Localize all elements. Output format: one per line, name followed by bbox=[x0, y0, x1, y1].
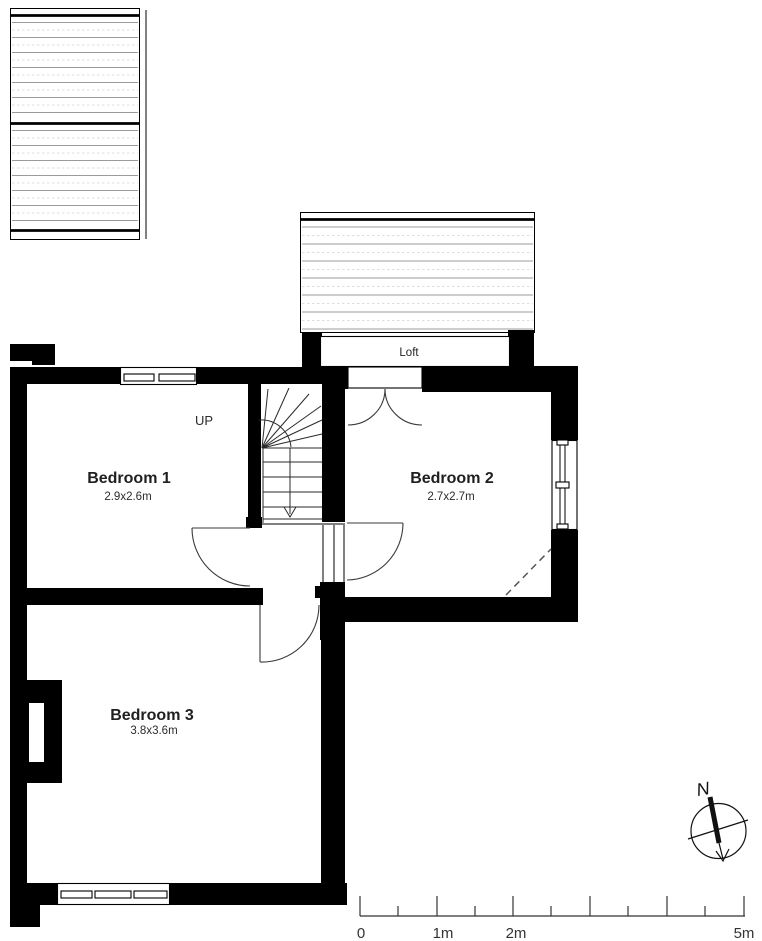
wall-bottom-bedroom2 bbox=[345, 597, 578, 622]
scale-label-0: 0 bbox=[357, 925, 365, 941]
wall-top-bedroom2-right bbox=[422, 366, 553, 392]
wall-bottom-bedroom3-right bbox=[170, 883, 347, 905]
door-bedroom3 bbox=[260, 605, 319, 662]
stair-winder bbox=[262, 420, 322, 448]
window-frame-cap bbox=[557, 440, 568, 445]
window-pane bbox=[159, 374, 195, 381]
north-arrow-compass-icon: N bbox=[688, 778, 748, 861]
wall-left-bedroom1 bbox=[10, 367, 27, 605]
wall-right-above-window bbox=[551, 366, 578, 440]
wall-stairs-right bbox=[322, 384, 345, 522]
wall-loft-right bbox=[508, 330, 534, 368]
wall-bottom-bedroom3-left bbox=[27, 883, 58, 905]
wall-stairs-left bbox=[248, 384, 261, 527]
stair-winder bbox=[262, 406, 321, 448]
door-swing-arc bbox=[347, 523, 403, 580]
loft-door-arc-right bbox=[385, 389, 422, 425]
room-labels: Bedroom 1 2.9x2.6m Bedroom 2 2.7x2.7m Be… bbox=[87, 347, 494, 737]
wall-divider-bedroom1-3 bbox=[10, 588, 263, 605]
wall-right-bedroom3 bbox=[321, 605, 345, 905]
scale-label-1m: 1m bbox=[433, 925, 454, 941]
roof-hatch-loft bbox=[300, 213, 535, 333]
window-pane bbox=[95, 891, 131, 898]
wall-top-bedroom1-right bbox=[197, 367, 322, 384]
bedroom1-dimensions: 2.9x2.6m bbox=[104, 491, 151, 503]
roof-outline bbox=[301, 213, 535, 333]
sloped-ceiling-dashed-line bbox=[506, 549, 551, 595]
wall-loft-left bbox=[302, 333, 322, 367]
scale-label-2m: 2m bbox=[506, 925, 527, 941]
wall-left-bedroom3 bbox=[10, 592, 27, 927]
walls bbox=[10, 330, 578, 927]
stair-winder bbox=[262, 389, 268, 448]
wall-break-line bbox=[10, 361, 32, 365]
bedroom2-dimensions: 2.7x2.7m bbox=[427, 491, 474, 503]
roof-hatch-top-left bbox=[10, 9, 146, 240]
window-bedroom3 bbox=[58, 884, 170, 905]
loft-door-arc-left bbox=[348, 389, 385, 425]
door-bedroom1 bbox=[192, 528, 250, 586]
window-frame-cap bbox=[557, 524, 568, 529]
door-swing-arc bbox=[260, 605, 319, 662]
wall-door-hinge-nub bbox=[246, 517, 262, 528]
bedroom1-name: Bedroom 1 bbox=[87, 470, 171, 487]
scale-label-5m: 5m bbox=[734, 925, 755, 941]
window-pane bbox=[61, 891, 92, 898]
chimney-breast-recess bbox=[29, 703, 44, 762]
window-pane bbox=[124, 374, 154, 381]
stairs-up-label: UP bbox=[195, 413, 213, 428]
window-bedroom2 bbox=[552, 440, 577, 530]
bedroom3-name: Bedroom 3 bbox=[110, 707, 194, 724]
door-swing-arc bbox=[192, 528, 250, 586]
loft-opening bbox=[348, 367, 422, 388]
door-bedroom2 bbox=[323, 523, 403, 583]
scale-bar: 0 1m 2m 5m bbox=[357, 896, 755, 941]
floor-plan-page: UP Bedroom 1 2.9x2.6m Bedroom 2 2.7x2.7m… bbox=[0, 0, 762, 941]
floor-plan-canvas: UP Bedroom 1 2.9x2.6m Bedroom 2 2.7x2.7m… bbox=[0, 0, 762, 941]
loft-label: Loft bbox=[399, 347, 419, 359]
window-pane bbox=[134, 891, 167, 898]
window-mid-rail bbox=[556, 482, 569, 488]
window-bedroom1 bbox=[121, 368, 197, 385]
bedroom3-dimensions: 3.8x3.6m bbox=[130, 725, 177, 737]
bedroom2-name: Bedroom 2 bbox=[410, 470, 494, 487]
north-label: N bbox=[695, 778, 712, 800]
